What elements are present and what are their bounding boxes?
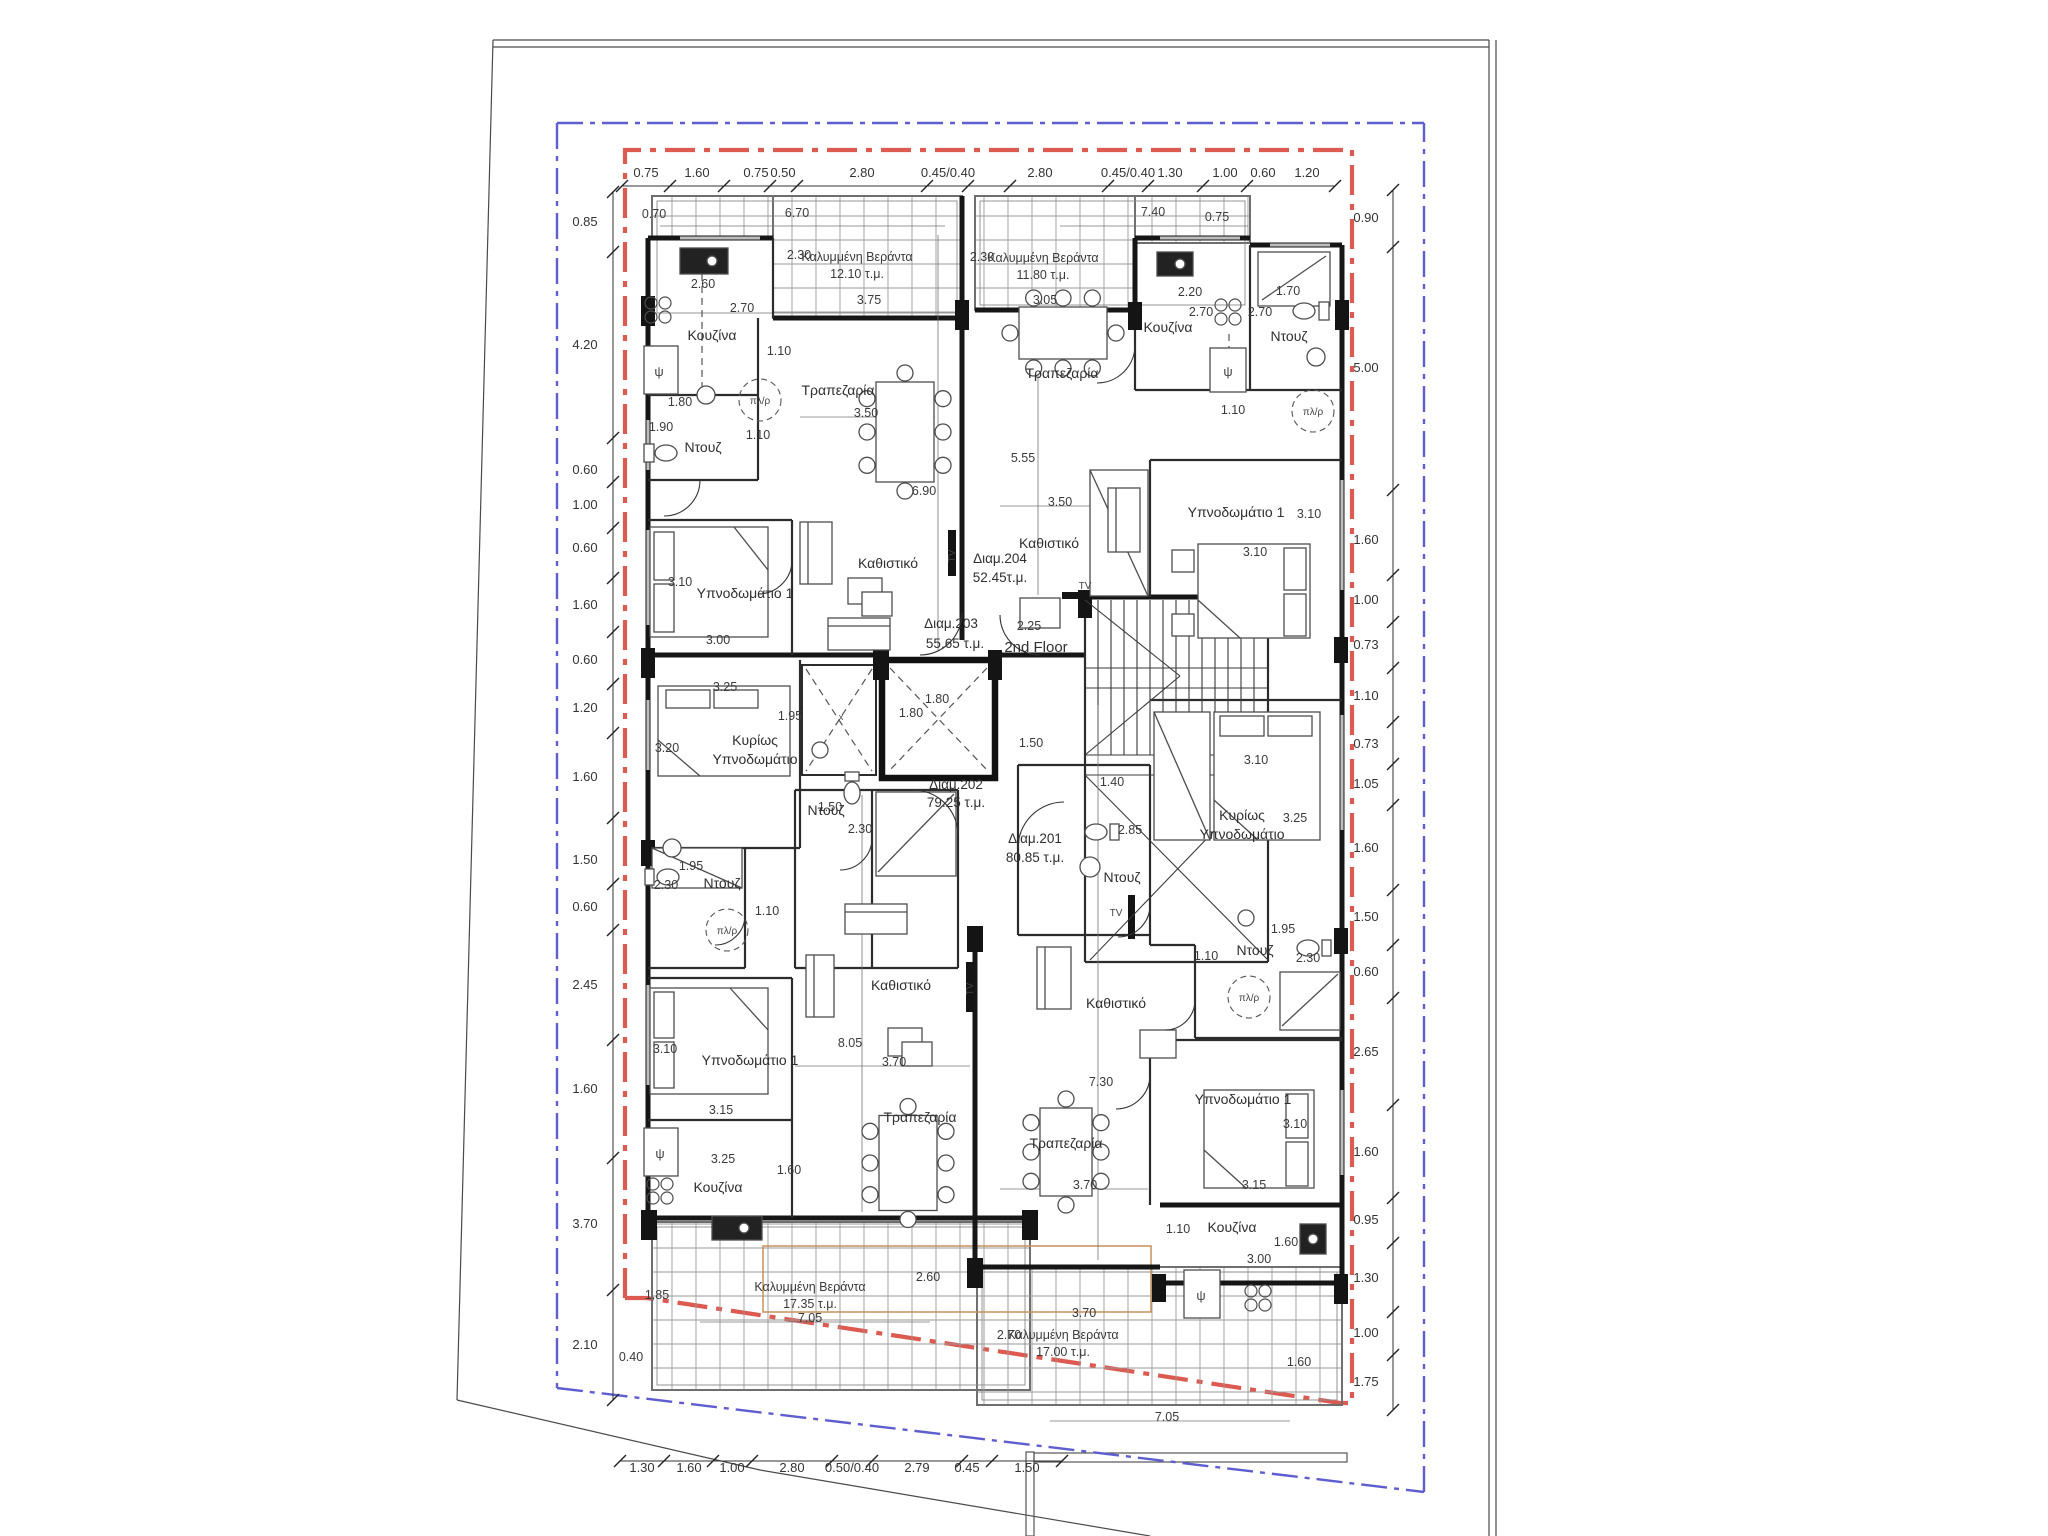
interior-dim: 3.10 bbox=[1297, 507, 1321, 521]
veranda-202-area: 17.35 τ.μ. bbox=[783, 1297, 837, 1311]
interior-dim: 3.70 bbox=[1072, 1306, 1096, 1320]
right-chain-dim: 1.50 bbox=[1353, 909, 1378, 924]
top-chain-dim: 0.60 bbox=[1250, 165, 1275, 180]
kathistiko-203: Καθιστικό bbox=[858, 555, 918, 571]
sofa bbox=[1037, 947, 1071, 1009]
interior-dim: 2.60 bbox=[916, 1270, 940, 1284]
interior-dim: 1.10 bbox=[1194, 949, 1218, 963]
kitchen-sink bbox=[1157, 252, 1193, 276]
veranda-202-name: Καλυμμένη Βεράντα bbox=[754, 1280, 865, 1294]
ntouz-203: Ντουζ bbox=[684, 439, 721, 455]
left-chain-dim: 0.60 bbox=[572, 899, 597, 914]
bed bbox=[1172, 544, 1310, 638]
right-chain-dim: 1.60 bbox=[1353, 840, 1378, 855]
interior-dim: 1.85 bbox=[645, 1288, 669, 1302]
right-chain-dim: 1.05 bbox=[1353, 776, 1378, 791]
left-chain-dim: 4.20 bbox=[572, 337, 597, 352]
kathistiko-204: Καθιστικό bbox=[1019, 535, 1079, 551]
right-chain-dim: 1.10 bbox=[1353, 688, 1378, 703]
plir-203: πλ/ρ bbox=[750, 396, 771, 407]
left-chain-dim: 1.60 bbox=[572, 769, 597, 784]
basin bbox=[1307, 348, 1325, 366]
left-chain-dim: 3.70 bbox=[572, 1216, 597, 1231]
kitchen-sink bbox=[680, 248, 728, 274]
top-chain-dim: 1.60 bbox=[684, 165, 709, 180]
interior-dim: 1.50 bbox=[1019, 736, 1043, 750]
interior-dim: 1.40 bbox=[1100, 775, 1124, 789]
kouzina-203: Κουζίνα bbox=[688, 327, 737, 343]
ypnodomatio1-203: Υπνοδωμάτιο 1 bbox=[697, 585, 794, 601]
left-chain-dim: 0.60 bbox=[572, 462, 597, 477]
coffee-table bbox=[848, 578, 892, 616]
stove bbox=[1215, 299, 1241, 325]
bottom-chain-dim: 1.60 bbox=[676, 1460, 701, 1475]
top-chain-dim: 1.30 bbox=[1157, 165, 1182, 180]
interior-dim: 2.85 bbox=[1118, 823, 1142, 837]
left-chain-dim: 2.45 bbox=[572, 977, 597, 992]
top-chain-dim: 1.20 bbox=[1294, 165, 1319, 180]
interior-dim: 1.50 bbox=[818, 800, 842, 814]
interior-dim: 3.10 bbox=[653, 1042, 677, 1056]
interior-dim: 2.25 bbox=[1017, 619, 1041, 633]
kyrios-ypnodomatio-201: Κυρίως bbox=[1219, 807, 1265, 823]
top-chain-dim: 2.80 bbox=[849, 165, 874, 180]
right-chain-dim: 0.90 bbox=[1353, 210, 1378, 225]
floor-plan-canvas: ΚουζίναΝτουζΤραπεζαρίαΚαθιστικόΥπνοδωμάτ… bbox=[0, 0, 2048, 1536]
interior-dim: 2.70 bbox=[997, 1328, 1021, 1342]
right-chain-dim: 1.00 bbox=[1353, 1325, 1378, 1340]
interior-dim: 1.95 bbox=[1271, 922, 1295, 936]
shower bbox=[1280, 972, 1340, 1030]
ypnodomatio1-202: Υπνοδωμάτιο 1 bbox=[702, 1052, 799, 1068]
interior-dim: 3.25 bbox=[1283, 811, 1307, 825]
interior-dim: 3.50 bbox=[1048, 495, 1072, 509]
top-chain-dim: 2.80 bbox=[1027, 165, 1052, 180]
left-chain-dim: 0.60 bbox=[572, 540, 597, 555]
ypnodomatio1-201: Υπνοδωμάτιο 1 bbox=[1195, 1091, 1292, 1107]
kyrios-ypnodomatio-201: Υπνοδωμάτιο bbox=[1199, 826, 1284, 842]
veranda-204-area: 11.80 τ.μ. bbox=[1017, 268, 1070, 282]
plir-201: πλ/ρ bbox=[1239, 993, 1260, 1004]
trapezaria-201: Τραπεζαρία bbox=[1029, 1135, 1102, 1151]
basin bbox=[1238, 910, 1254, 926]
interior-dim: 3.00 bbox=[1247, 1252, 1271, 1266]
kouzina-202: Κουζίνα bbox=[694, 1179, 743, 1195]
interior-dim: 1.10 bbox=[1166, 1222, 1190, 1236]
trapezaria-204: Τραπεζαρία bbox=[1025, 365, 1098, 381]
interior-dim: 2.70 bbox=[1248, 305, 1272, 319]
interior-dim: 3.10 bbox=[1283, 1117, 1307, 1131]
veranda-203-area: 12.10 τ.μ. bbox=[830, 267, 884, 281]
apt-203-area: 55.65 τ.μ. bbox=[926, 636, 984, 651]
apt-204-name: Διαμ.204 bbox=[973, 551, 1027, 566]
interior-dim: 3.10 bbox=[1243, 545, 1267, 559]
top-chain-dim: 0.75 bbox=[743, 165, 768, 180]
interior-dim: 3.75 bbox=[857, 293, 881, 307]
interior-dim: 1.10 bbox=[767, 344, 791, 358]
right-chain-dim: 1.30 bbox=[1353, 1270, 1378, 1285]
right-chain-dim: 5.00 bbox=[1353, 360, 1378, 375]
right-chain-dim: 0.73 bbox=[1353, 736, 1378, 751]
interior-dim: 3.25 bbox=[713, 680, 737, 694]
bottom-chain-dim: 0.45 bbox=[954, 1460, 979, 1475]
veranda-203-name: Καλυμμένη Βεράντα bbox=[801, 250, 912, 264]
interior-dim: 3.70 bbox=[882, 1055, 906, 1069]
kyrios-ypnodomatio-202: Υπνοδωμάτιο bbox=[712, 751, 797, 767]
right-chain-dim: 1.60 bbox=[1353, 532, 1378, 547]
left-chain-dim: 2.10 bbox=[572, 1337, 597, 1352]
interior-dim: 0.70 bbox=[642, 207, 666, 221]
interior-dim: 7.30 bbox=[1089, 1075, 1113, 1089]
left-chain-dim: 1.50 bbox=[572, 852, 597, 867]
interior-dim: 3.70 bbox=[1073, 1178, 1097, 1192]
interior-dim: 0.40 bbox=[619, 1350, 643, 1364]
tv-201: TV bbox=[1110, 908, 1123, 919]
interior-dim: 7.05 bbox=[798, 1311, 822, 1325]
left-chain-dim: 1.00 bbox=[572, 497, 597, 512]
interior-dim: 5.55 bbox=[1011, 451, 1035, 465]
interior-dim: 3.20 bbox=[655, 741, 679, 755]
interior-dim: 0.75 bbox=[1205, 210, 1229, 224]
interior-dim: 1.95 bbox=[679, 859, 703, 873]
interior-dim: 3.00 bbox=[706, 633, 730, 647]
veranda-201-name: Καλυμμένη Βεράντα bbox=[1007, 1328, 1118, 1342]
kouzina-201: Κουζίνα bbox=[1208, 1219, 1257, 1235]
psi-201: ψ bbox=[1196, 1288, 1205, 1303]
interior-dim: 6.70 bbox=[785, 206, 809, 220]
kitchen-sink bbox=[712, 1216, 762, 1240]
ntouz-201-lower: Ντουζ bbox=[1236, 942, 1273, 958]
sofa bbox=[800, 522, 832, 584]
shaft-x: x bbox=[839, 712, 844, 722]
left-chain-dim: 1.20 bbox=[572, 700, 597, 715]
interior-dim: 3.15 bbox=[1242, 1178, 1266, 1192]
bottom-chain-dim: 1.50 bbox=[1014, 1460, 1039, 1475]
interior-dim: 1.60 bbox=[777, 1163, 801, 1177]
ypnodomatio1-204: Υπνοδωμάτιο 1 bbox=[1188, 504, 1285, 520]
sofa bbox=[845, 904, 907, 934]
psi-202: ψ bbox=[655, 1146, 664, 1161]
left-chain-dim: 1.60 bbox=[572, 597, 597, 612]
interior-dim: 1.80 bbox=[668, 395, 692, 409]
bottom-chain-dim: 1.00 bbox=[719, 1460, 744, 1475]
interior-dim: 2.30 bbox=[787, 248, 811, 262]
interior-dim: 2.70 bbox=[730, 301, 754, 315]
interior-dim: 1.10 bbox=[746, 428, 770, 442]
plir-202: πλ/ρ bbox=[717, 926, 738, 937]
top-chain-dim: 0.50 bbox=[770, 165, 795, 180]
apt-202-name: Διαμ.202 bbox=[929, 777, 983, 792]
interior-dim: 6.90 bbox=[912, 484, 936, 498]
kathistiko-201: Καθιστικό bbox=[1086, 995, 1146, 1011]
interior-dim: 3.10 bbox=[1244, 753, 1268, 767]
interior-dim: 3.05 bbox=[1033, 293, 1057, 307]
coffee-table bbox=[1140, 1030, 1176, 1058]
wardrobe bbox=[1154, 712, 1210, 840]
interior-dim: 1.60 bbox=[1274, 1235, 1298, 1249]
interior-dim: 1.95 bbox=[778, 709, 802, 723]
right-chain-dim: 0.95 bbox=[1353, 1212, 1378, 1227]
apt-201-name: Διαμ.201 bbox=[1008, 831, 1062, 846]
interior-dim: 3.50 bbox=[854, 406, 878, 420]
interior-dim: 2.30 bbox=[848, 822, 872, 836]
kitchen-sink bbox=[1300, 1224, 1326, 1254]
interior-dim: 1.90 bbox=[649, 420, 673, 434]
interior-dim: 3.25 bbox=[711, 1152, 735, 1166]
basin bbox=[812, 742, 828, 758]
interior-dim: 2.30 bbox=[1296, 951, 1320, 965]
trapezaria-203: Τραπεζαρία bbox=[801, 382, 874, 398]
basin bbox=[663, 839, 681, 857]
top-chain-dim: 1.00 bbox=[1212, 165, 1237, 180]
stove bbox=[647, 1178, 673, 1204]
sofa bbox=[828, 618, 890, 650]
interior-dim: 1.80 bbox=[925, 692, 949, 706]
interior-dim: 8.05 bbox=[838, 1036, 862, 1050]
interior-dim: 7.05 bbox=[1155, 1410, 1179, 1424]
veranda-204-name: Καλυμμένη Βεράντα bbox=[987, 251, 1098, 265]
left-chain-dim: 0.60 bbox=[572, 652, 597, 667]
right-chain-dim: 1.00 bbox=[1353, 592, 1378, 607]
interior-dim: 2.30 bbox=[654, 878, 678, 892]
right-chain-dim: 1.75 bbox=[1353, 1374, 1378, 1389]
psi-203: ψ bbox=[654, 364, 663, 379]
interior-dim: 1.10 bbox=[1221, 403, 1245, 417]
apt-204-area: 52.45τ.μ. bbox=[973, 570, 1027, 585]
ntouz-201-top: Ντουζ bbox=[1103, 869, 1140, 885]
sofa bbox=[806, 955, 834, 1017]
bottom-chain-dim: 2.79 bbox=[904, 1460, 929, 1475]
interior-dim: 3.10 bbox=[668, 575, 692, 589]
plir-204: πλ/ρ bbox=[1303, 407, 1324, 418]
interior-dim: 2.30 bbox=[970, 250, 994, 264]
ntouz-202-left: Ντουζ bbox=[703, 875, 740, 891]
apt-202-area: 79.25 τ.μ. bbox=[927, 795, 985, 810]
floor-label: 2nd Floor bbox=[1004, 639, 1067, 656]
apt-203-name: Διαμ.203 bbox=[924, 616, 978, 631]
right-chain-dim: 0.73 bbox=[1353, 637, 1378, 652]
apt-201-area: 80.85 τ.μ. bbox=[1006, 850, 1064, 865]
sofa bbox=[1108, 488, 1140, 552]
basin bbox=[697, 386, 715, 404]
top-chain-dim: 0.45/0.40 bbox=[921, 165, 975, 180]
interior-dim: 1.80 bbox=[899, 706, 923, 720]
kyrios-ypnodomatio-202: Κυρίως bbox=[732, 732, 778, 748]
bottom-chain-dim: 1.30 bbox=[629, 1460, 654, 1475]
left-chain-dim: 1.60 bbox=[572, 1081, 597, 1096]
trapezaria-202: Τραπεζαρία bbox=[883, 1109, 956, 1125]
interior-dim: 1.60 bbox=[1287, 1355, 1311, 1369]
interior-dim: 3.15 bbox=[709, 1103, 733, 1117]
tv-203: TV bbox=[947, 549, 958, 562]
tv-204: TV bbox=[1079, 581, 1092, 592]
bottom-chain-dim: 0.50/0.40 bbox=[825, 1460, 879, 1475]
right-chain-dim: 0.60 bbox=[1353, 964, 1378, 979]
basin bbox=[1080, 857, 1100, 877]
right-chain-dim: 1.60 bbox=[1353, 1144, 1378, 1159]
tv-202: TV bbox=[965, 982, 976, 995]
kouzina-204: Κουζίνα bbox=[1144, 319, 1193, 335]
kathistiko-202: Καθιστικό bbox=[871, 977, 931, 993]
ntouz-204: Ντουζ bbox=[1270, 328, 1307, 344]
top-chain-dim: 0.45/0.40 bbox=[1101, 165, 1155, 180]
interior-dim: 2.70 bbox=[1189, 305, 1213, 319]
veranda-201-area: 17.00 τ.μ. bbox=[1036, 1345, 1090, 1359]
left-chain-dim: 0.85 bbox=[572, 214, 597, 229]
bed bbox=[650, 988, 768, 1094]
interior-dim: 2.60 bbox=[691, 277, 715, 291]
interior-dim: 1.70 bbox=[1276, 284, 1300, 298]
psi-204: ψ bbox=[1223, 364, 1232, 379]
interior-dim: 2.20 bbox=[1178, 285, 1202, 299]
interior-dim: 7.40 bbox=[1141, 205, 1165, 219]
interior-dim: 1.10 bbox=[755, 904, 779, 918]
top-chain-dim: 0.75 bbox=[633, 165, 658, 180]
right-chain-dim: 2.65 bbox=[1353, 1044, 1378, 1059]
floor-plan-drawing: ΚουζίναΝτουζΤραπεζαρίαΚαθιστικόΥπνοδωμάτ… bbox=[0, 0, 2048, 1536]
dining-table bbox=[1023, 1091, 1109, 1213]
bottom-chain-dim: 2.80 bbox=[779, 1460, 804, 1475]
